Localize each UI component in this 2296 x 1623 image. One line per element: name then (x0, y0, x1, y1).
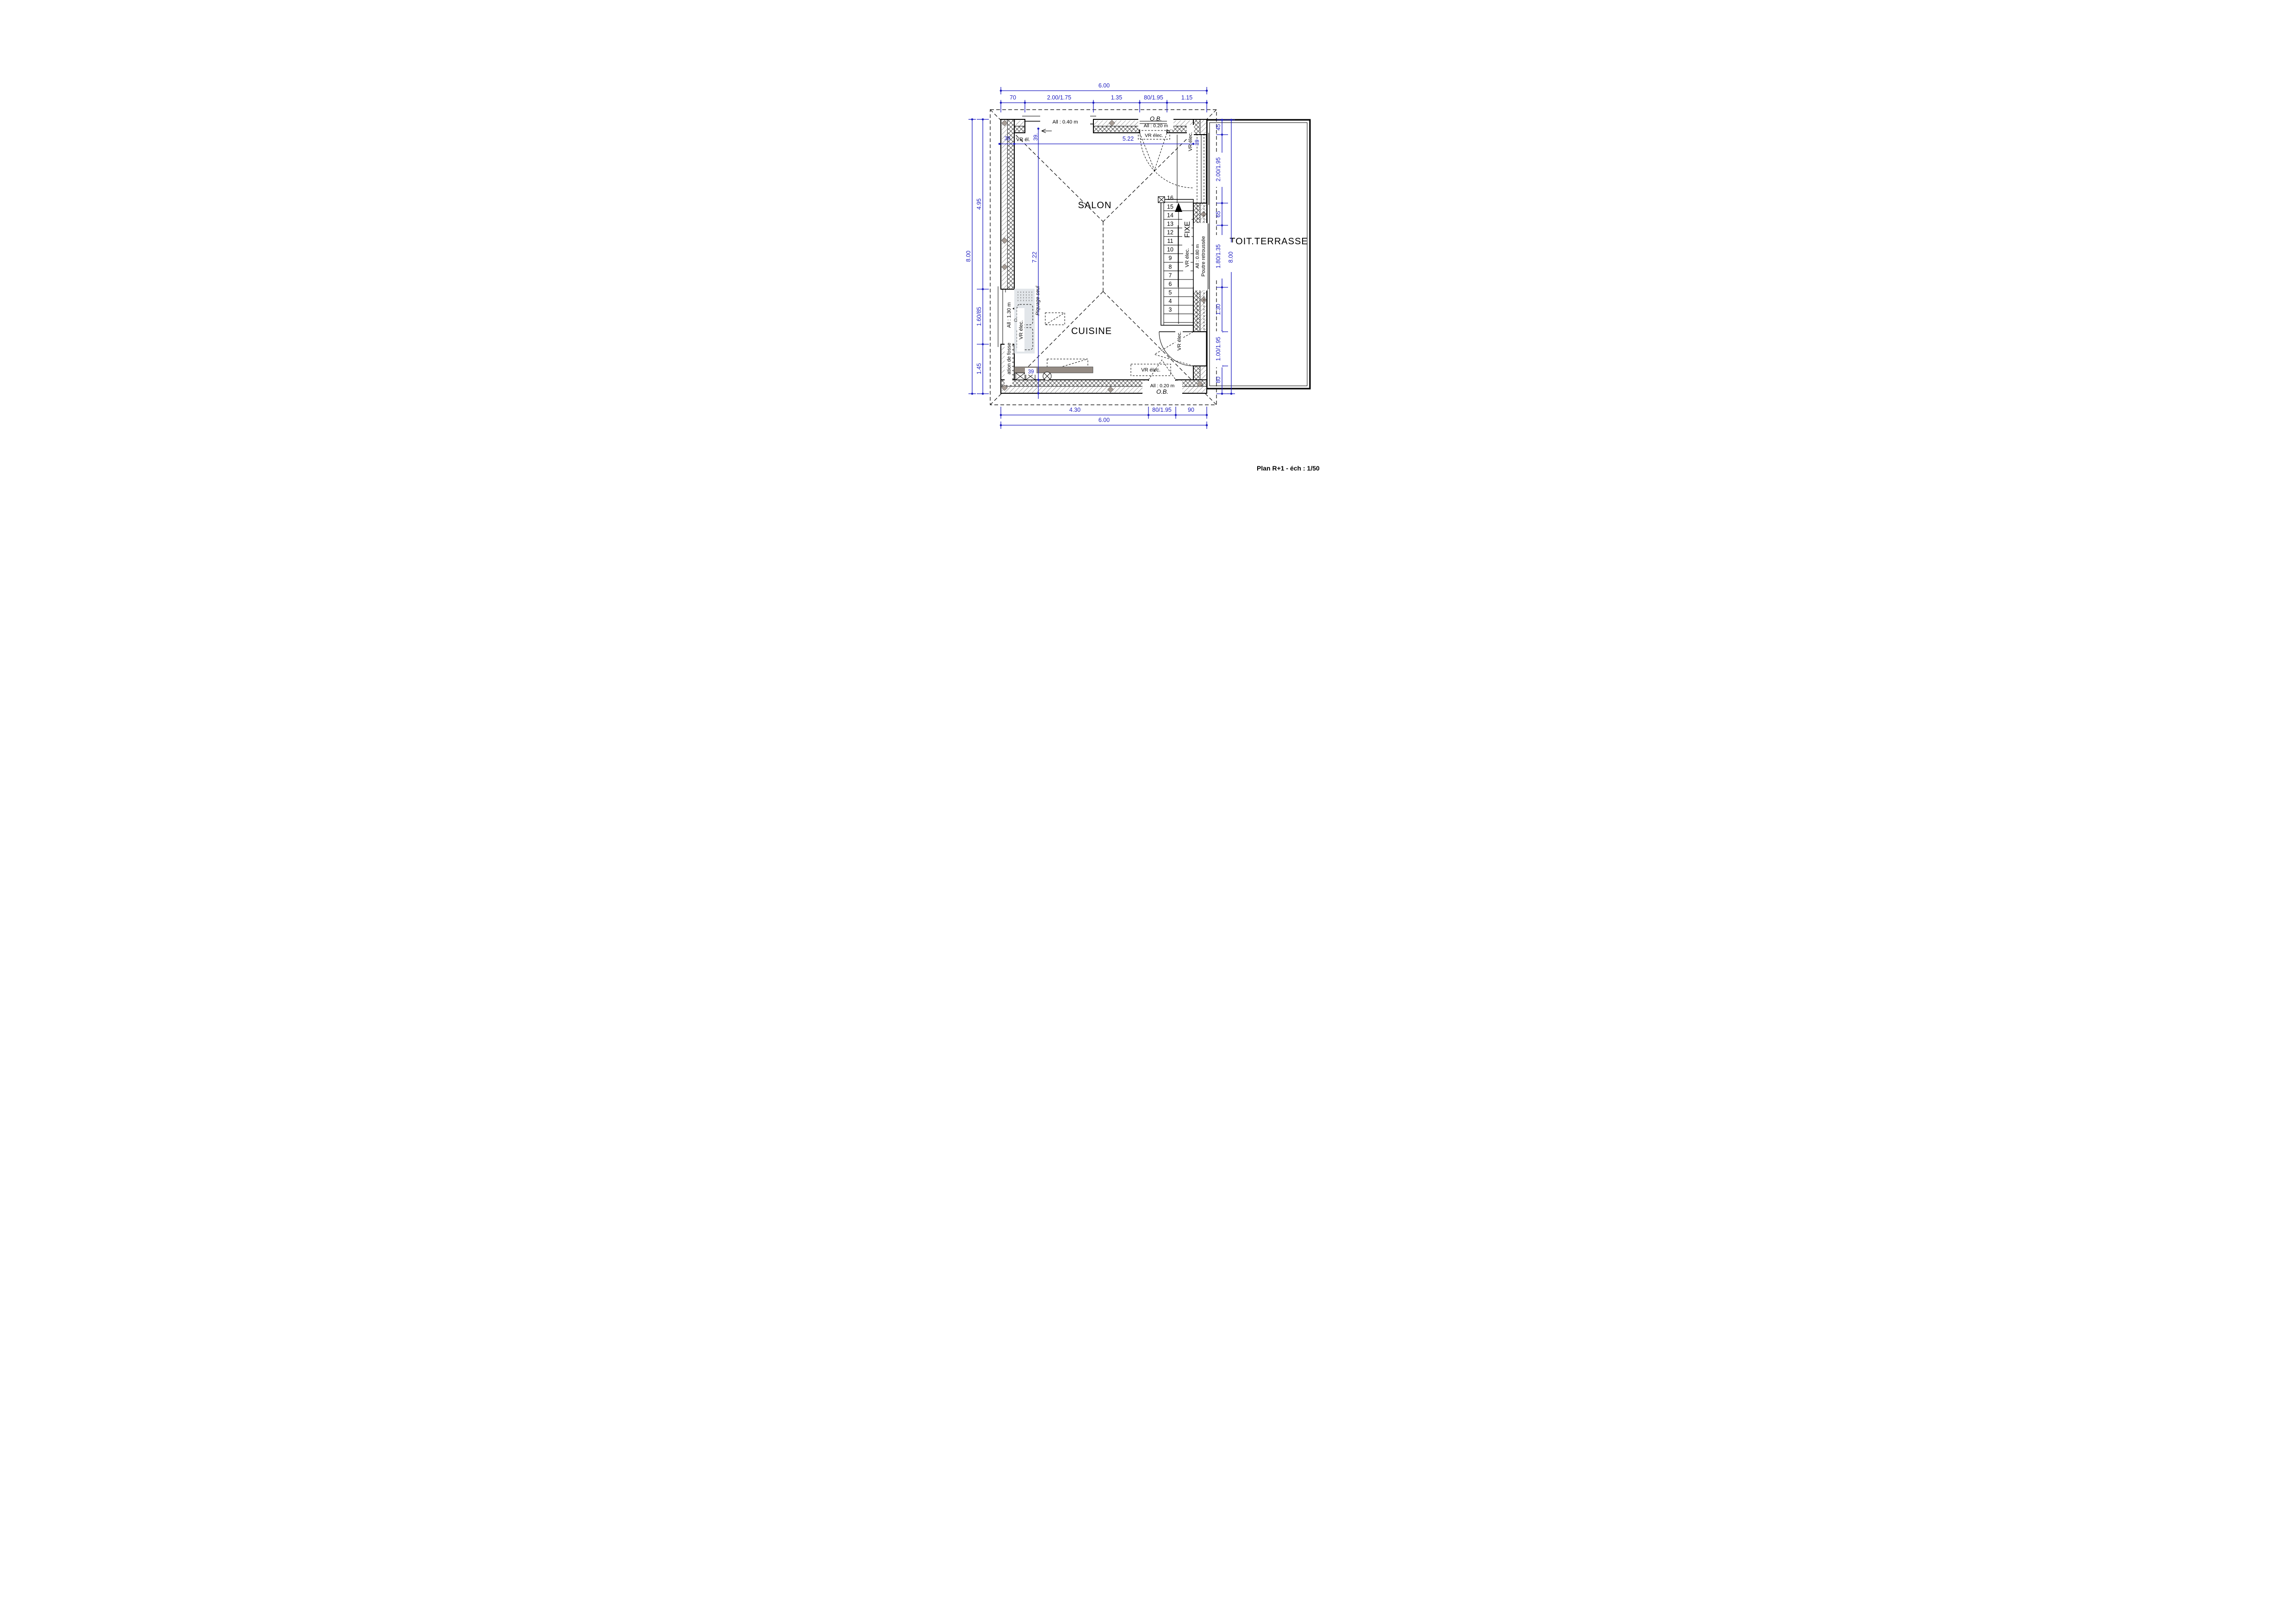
step-number: 16 (1167, 195, 1173, 201)
ob-allege-label: All : 0.20 m (1143, 123, 1168, 129)
stair-newel-post (1158, 197, 1165, 203)
dim-wall-bottom: 39 (1028, 369, 1034, 375)
step-number: 5 (1168, 290, 1172, 296)
piquage-seul-label: Piquage seul (1035, 286, 1041, 316)
dim-bottom: 4.30 80/1.95 90 6.00 (999, 407, 1208, 429)
cuisine-label: CUISINE (1071, 326, 1111, 336)
step-number: 8 (1168, 264, 1172, 270)
dim-segment: 1.30 (1215, 304, 1222, 315)
vr-elec-window-label: VR élec. (1188, 132, 1193, 151)
ob-label: O.B. (1156, 388, 1168, 395)
dim-interior-width: 5.22 (1122, 136, 1133, 142)
staircase: 16 15 14 13 12 11 10 9 8 7 6 5 4 3 FIXE … (1158, 195, 1193, 325)
step-number: 14 (1167, 212, 1173, 218)
step-number: 4 (1168, 298, 1172, 304)
beam-allege-label: All : 0.80 m (1195, 244, 1200, 268)
dim-segment: 1.80/1.35 (1215, 244, 1222, 268)
dim-segment: 1.15 (1181, 94, 1192, 101)
plan-title: Plan R+1 - éch : 1/50 (1257, 465, 1320, 472)
step-number: 10 (1167, 247, 1173, 253)
dim-segment: 1.00/1.95 (1215, 337, 1222, 361)
plan-canvas: TOIT.TERRASSE (788, 0, 1508, 509)
step-number: 6 (1168, 281, 1172, 287)
dim-segment: 80 (1215, 377, 1222, 383)
dim-segment: 1.45 (976, 363, 982, 374)
stair-vr-elec-label: VR élec. (1185, 248, 1190, 267)
terrace-inner-border (1210, 123, 1307, 386)
dim-bottom-overall: 6.00 (1098, 417, 1109, 423)
dim-wall-top: 39. (1033, 133, 1039, 141)
step-number: 9 (1168, 255, 1172, 261)
terrace-door: VR élec. (1154, 325, 1193, 366)
sliding-direction-arrow (1042, 129, 1052, 133)
vr-elec-label: VR élec. (1145, 133, 1163, 138)
window-swing-arc (1140, 135, 1193, 188)
dim-interior-height: 7.22 (1031, 252, 1038, 263)
dim-segment: 80/1.95 (1152, 407, 1172, 413)
dim-segment: 4.95 (976, 198, 982, 210)
dim-segment: 4.30 (1069, 407, 1080, 413)
dim-right: 45 2.00/1.95 65 1.80/1.35 1.30 1.00/1.95… (1215, 119, 1235, 395)
step-number: 11 (1167, 238, 1173, 244)
dim-segment: 1.60/85 (976, 307, 982, 326)
dim-wall-left: 39 (1004, 136, 1010, 142)
vr-elec-kitchen-label: VR élec. (1018, 320, 1024, 340)
dim-segment: 45 (1215, 124, 1222, 130)
step-number: 13 (1167, 221, 1173, 227)
vr-elec-label: VR élec. (1141, 367, 1160, 373)
roof-outline (990, 110, 1216, 405)
fosse-label: ation de fosse (1006, 343, 1012, 375)
stair-up-arrow (1175, 203, 1182, 212)
dim-left: 4.95 1.60/85 1.45 8.00 (965, 118, 989, 395)
salon-label: SALON (1078, 200, 1111, 211)
poutre-retroussee-label: Poutre retroussée (1201, 236, 1206, 276)
dim-segment: 2.00/1.95 (1215, 157, 1222, 181)
dim-right-overall: 8.00 (1228, 252, 1234, 263)
dim-top-overall: 6.00 (1098, 82, 1109, 89)
dim-top: 6.00 70 2.00/1.75 1.35 80/1.95 1.15 (999, 82, 1208, 112)
dim-left-overall: 8.00 (965, 251, 972, 262)
dim-segment: 80/1.95 (1144, 94, 1163, 101)
window-top-sliding: All : 0.40 m (1022, 115, 1096, 133)
dim-segment: 90 (1188, 407, 1194, 413)
dim-segment: 2.00/1.75 (1047, 94, 1071, 101)
step-number: 7 (1168, 272, 1172, 279)
floor-plan-page: TOIT.TERRASSE (788, 0, 1508, 509)
dim-segment: 65 (1215, 211, 1222, 217)
dim-segment: 70 (1010, 94, 1016, 101)
terrace-label: TOIT.TERRASSE (1229, 236, 1308, 247)
kitchen-allege-label: All : 1.30 m (1006, 302, 1012, 328)
stair-fixe-label: FIXE (1184, 221, 1191, 238)
step-number: 12 (1167, 229, 1173, 236)
vr-elec-clipped-label: VR él. (1016, 137, 1030, 142)
window-tilt-symbol (1140, 133, 1167, 170)
dim-wall-right: 39 (1195, 140, 1200, 146)
window-allege-label: All : 0.40 m (1052, 119, 1078, 125)
step-number: 3 (1168, 307, 1172, 313)
dim-segment: 1.35 (1111, 94, 1122, 101)
step-number: 15 (1167, 204, 1173, 210)
vr-elec-door-label: VR élec. (1177, 331, 1182, 351)
